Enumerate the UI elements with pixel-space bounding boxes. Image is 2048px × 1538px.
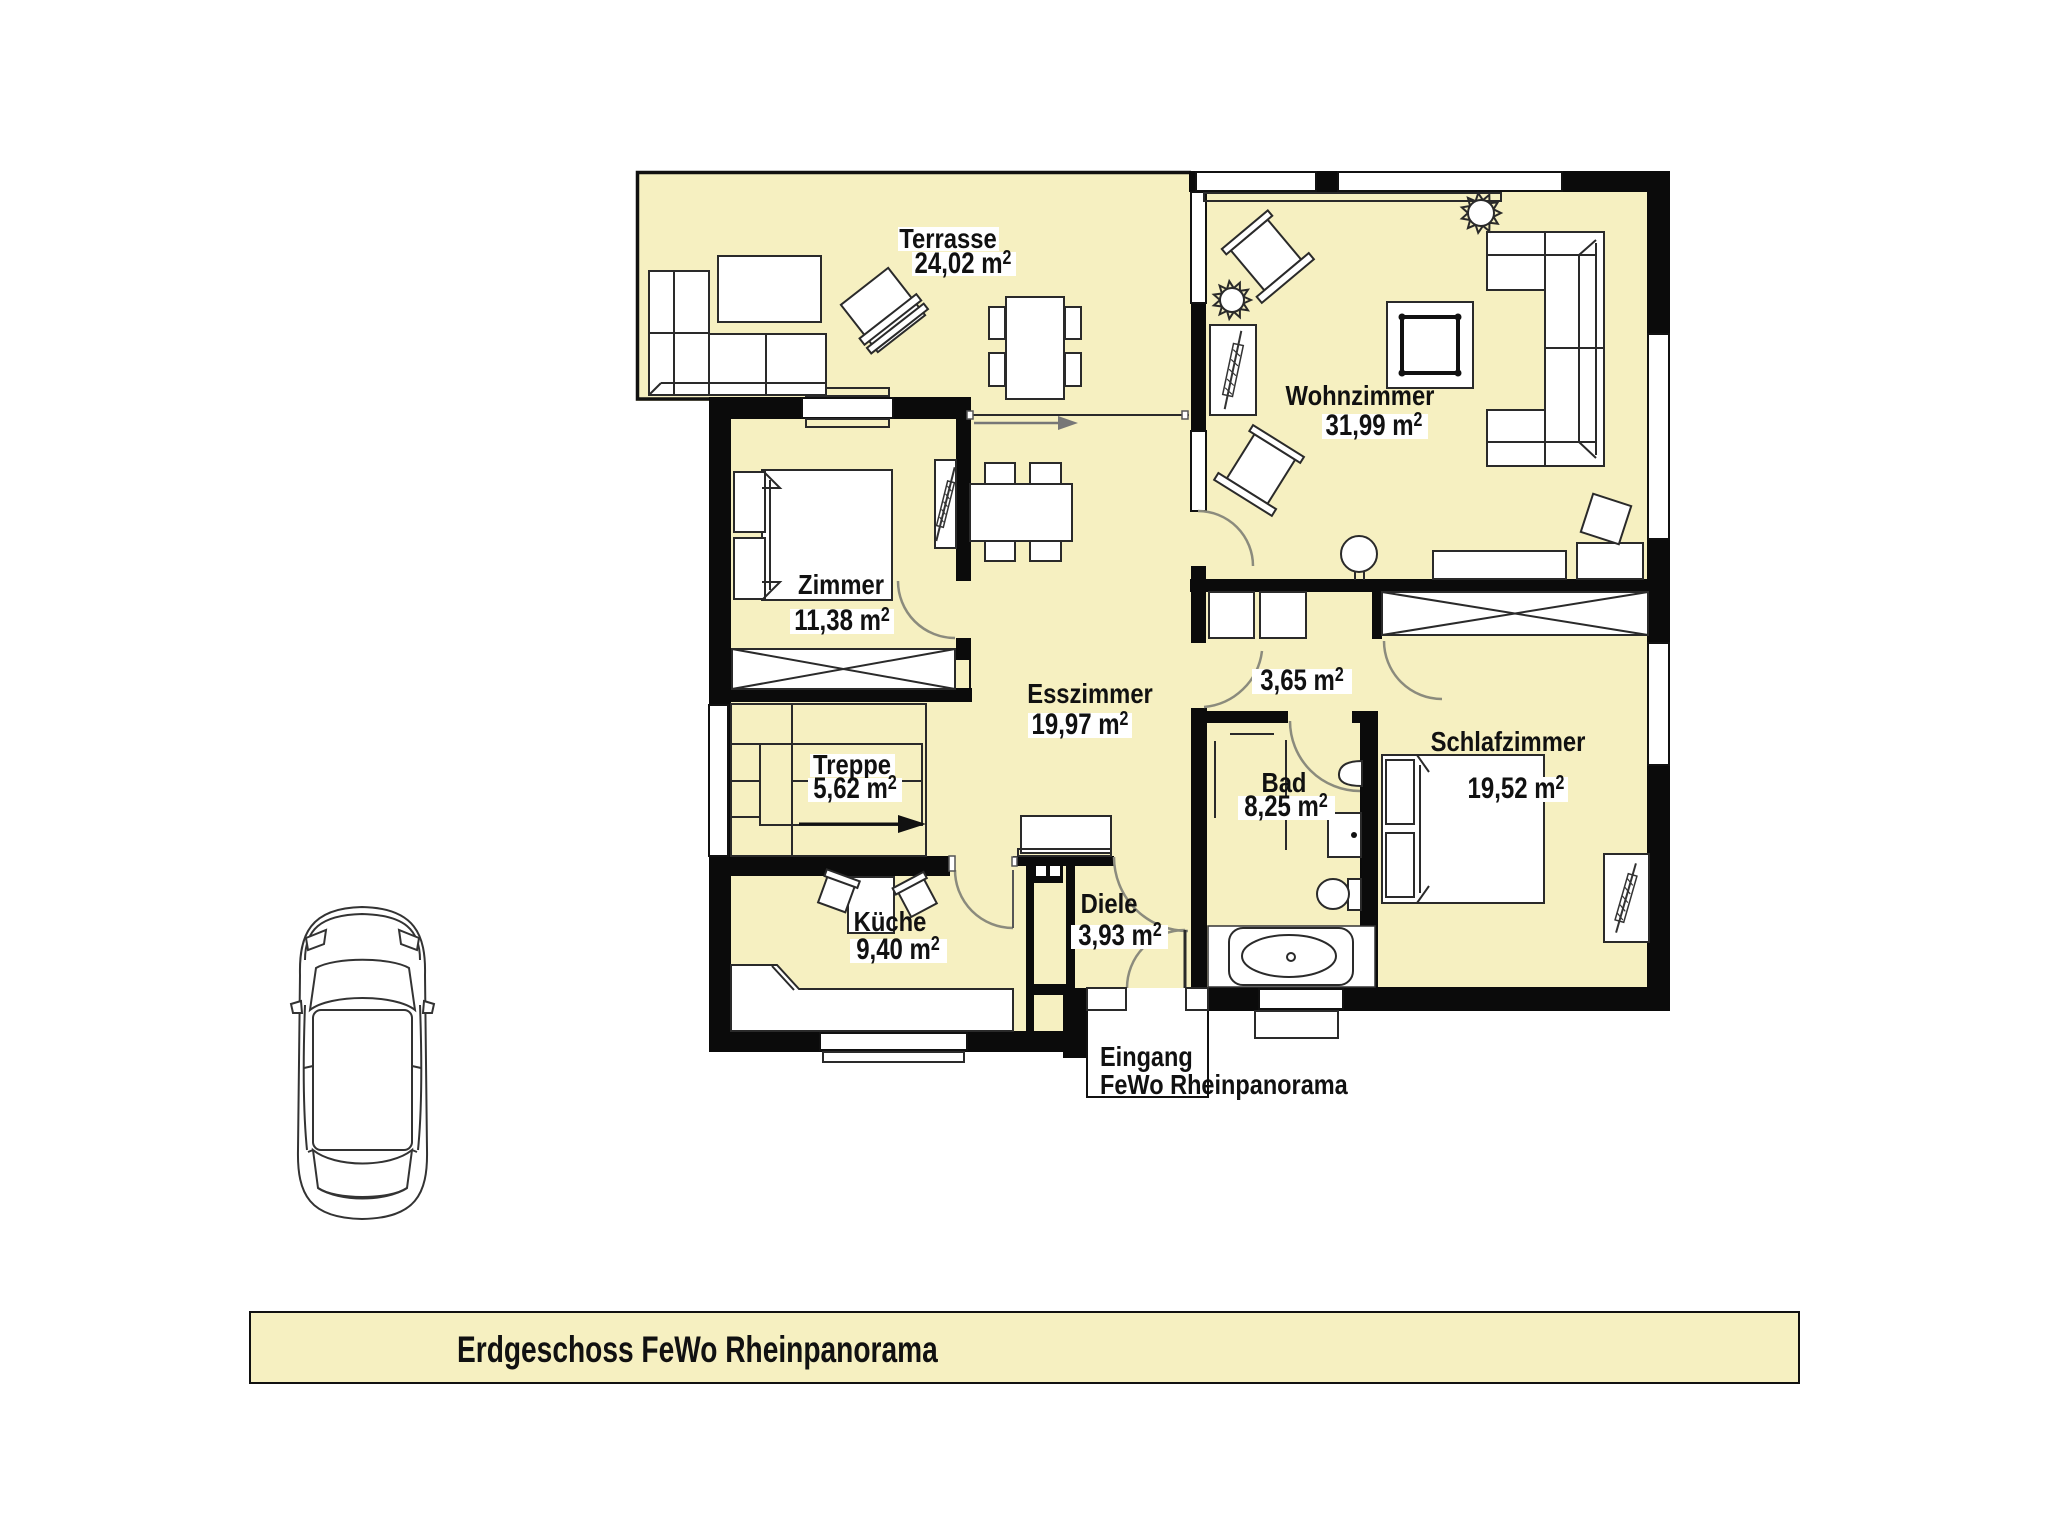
svg-text:3,93 m2: 3,93 m2 (1078, 917, 1162, 951)
svg-text:Esszimmer: Esszimmer (1027, 677, 1153, 709)
svg-text:19,52 m2: 19,52 m2 (1468, 770, 1565, 804)
svg-text:3,65 m2: 3,65 m2 (1260, 662, 1344, 696)
svg-text:19,97 m2: 19,97 m2 (1032, 706, 1129, 740)
svg-text:FeWo Rheinpanorama: FeWo Rheinpanorama (1100, 1070, 1348, 1100)
svg-text:9,40 m2: 9,40 m2 (856, 931, 940, 965)
svg-text:Eingang: Eingang (1100, 1042, 1193, 1072)
svg-text:8,25 m2: 8,25 m2 (1244, 788, 1328, 822)
svg-text:Zimmer: Zimmer (798, 568, 884, 600)
svg-text:Schlafzimmer: Schlafzimmer (1431, 725, 1586, 757)
svg-text:11,38 m2: 11,38 m2 (794, 602, 890, 636)
svg-text:24,02 m2: 24,02 m2 (915, 245, 1012, 279)
svg-text:31,99 m2: 31,99 m2 (1326, 407, 1423, 441)
svg-text:Erdgeschoss FeWo Rheinpanorama: Erdgeschoss FeWo Rheinpanorama (457, 1328, 938, 1370)
svg-text:Diele: Diele (1081, 887, 1138, 919)
svg-text:5,62 m2: 5,62 m2 (813, 770, 897, 804)
